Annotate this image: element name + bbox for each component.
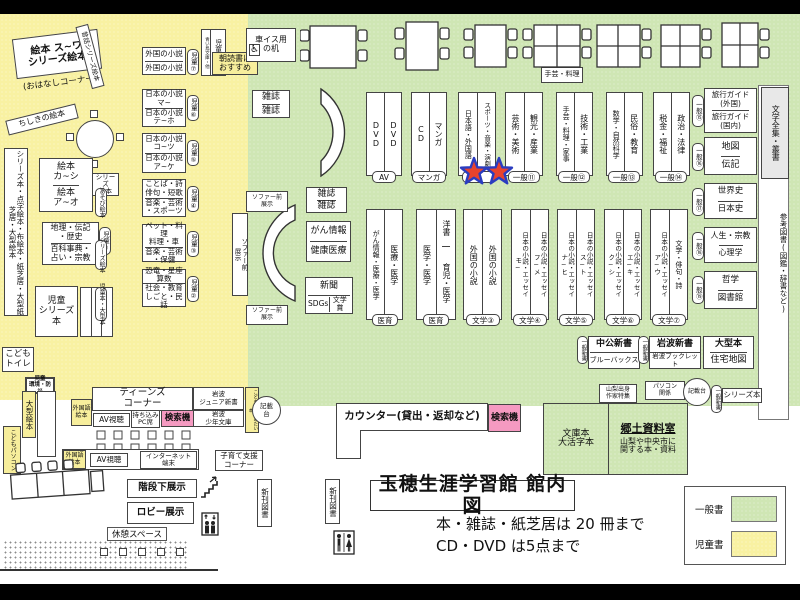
magazine-shelf: 雑誌 雑誌 xyxy=(252,90,290,118)
chair xyxy=(116,133,124,141)
kids-shelf-7: 外国の小説 外国の小説 xyxy=(142,47,186,75)
shelf-label: 人生・宗教 xyxy=(711,228,751,245)
tag-shinsho-2: 一般新書 xyxy=(638,336,649,364)
tag-ippan-14: 一般⑭ xyxy=(655,171,687,183)
shelf-label: 日本の小説・エッセイ エ~キ xyxy=(623,210,642,319)
shelf-label: 雑誌 xyxy=(262,91,280,104)
yamanashi-authors-display: 山梨出身 作家特集 xyxy=(599,384,637,403)
curved-display-shelf xyxy=(313,87,353,178)
shelf-label: 世界史 xyxy=(718,184,744,201)
shelf-travel-guides: 旅行ガイド (外国) 旅行ガイド (国内) xyxy=(704,88,757,133)
computer-books-display: パソコン 関係 xyxy=(645,381,685,400)
new-books-shelf-1: 新刊図書 xyxy=(257,479,272,527)
tag-iiku-1: 医育 xyxy=(372,314,398,326)
kids-shelf-2: 恐竜・星座 算数 社会・教育 しごと・民話 xyxy=(142,269,186,307)
shelf-sublabel: 青い鳥文庫・他 xyxy=(202,30,210,75)
shelf-label: 音楽・芸術 ・保健 xyxy=(145,247,183,265)
shelf-label: がん情報・医療・医学 xyxy=(367,210,384,319)
shelf-label: 岩波新書 xyxy=(657,337,693,352)
literature-prize-label: 文学賞 xyxy=(329,297,351,313)
shelf-label: 恐竜・星座 算数 xyxy=(145,267,183,284)
local-history-title: 郷土資料室 xyxy=(621,423,676,435)
shelf-label: 観光・産業 xyxy=(524,93,543,175)
play-books-tag: あそび絵本 xyxy=(95,188,107,217)
shelf-label: 技術・工業 xyxy=(574,93,592,175)
local-history-room: 文庫本 大活字本 郷土資料室 山梨や中央市に 関する本・資料 xyxy=(543,403,688,475)
loan-rule-2: CD・DVD は5点まで xyxy=(436,535,666,556)
shelf-label: 旅行ガイド (外国) xyxy=(712,89,750,110)
counter: カウンター(貸出・返却など) xyxy=(336,403,488,431)
shelf-label: 日本の小説・エッセイ ク~シ xyxy=(605,210,623,319)
sdgs-label: SDGs xyxy=(308,300,329,308)
shelf-medical-foreign: 医学・医学 洋書 育児・医学 xyxy=(416,209,456,320)
shelf-label: 日本の小説・エッセイ ア~ウ xyxy=(651,210,669,319)
shelf-cd-manga: CD マンガ xyxy=(411,92,447,176)
shelf-jp-novels-5: 日本の小説・エッセイ ナ~ヒ 日本の小説・エッセイ ス~ト xyxy=(557,209,595,320)
shelf-label: 日本の小説 テ~ホ xyxy=(145,108,183,127)
shelf-label: 地理・伝記 ・歴史 xyxy=(51,223,91,243)
shelf-life-psychology: 人生・宗教 心理学 xyxy=(704,227,757,263)
series-picturebook-tag: シリーズ絵本 xyxy=(95,240,107,270)
shelf-label: 日本の小説 ア~ケ xyxy=(145,153,183,173)
shelf-bigbook-map: 大型本 住宅地図 xyxy=(703,336,754,369)
shelf-label: ブルーバックス xyxy=(590,352,639,368)
kids-tables xyxy=(4,456,107,505)
shelf-label: 日本史 xyxy=(718,201,744,219)
tag-shinsho-3: 一般新書 xyxy=(711,385,722,413)
sofa-front-display-top: ソファー前 展示 xyxy=(246,191,288,212)
picture-book-ka-shi-shelf: 絵本 カ~シ 絵本 ア~オ xyxy=(39,158,93,212)
shelf-label: 旅行ガイド (国内) xyxy=(712,110,750,132)
search-terminal-teens: 検索機 xyxy=(161,410,194,427)
shelf-maps-biography: 地図 伝記 xyxy=(704,137,757,175)
shelf-unit xyxy=(37,391,56,457)
shelf-label: 日本の小説・エッセイ モ~ xyxy=(512,210,530,319)
rest-seat xyxy=(176,548,184,556)
shelf-label: 税金・福祉 xyxy=(654,93,671,175)
bottom-letterbox xyxy=(0,584,800,600)
foreign-picturebook-shelf-1: 外国語 絵本 xyxy=(71,399,92,426)
shelf-label: 新聞 xyxy=(320,278,338,295)
under-stairs-display: 階段下展示 xyxy=(127,479,197,498)
shelf-label: 洋書 xyxy=(442,210,450,246)
tag-ippan-15: 一般⑮ xyxy=(692,95,704,127)
shelf-label: 住宅地図 xyxy=(710,352,746,368)
series-braille-bigbook-shelf: シリーズ本・点字絵本・布絵本・紙芝居・大型紙芝居・大型絵本 xyxy=(4,148,28,316)
shelf-label: 数学・自然科学 xyxy=(607,93,624,175)
shelf-foreign-novels: 外国の小説 外国の小説 xyxy=(463,209,502,320)
counter-leg xyxy=(336,430,361,459)
rest-seat xyxy=(138,548,146,556)
shelf-label: 日本の小説 マ~ xyxy=(145,90,183,108)
rest-seat xyxy=(100,548,108,556)
kids-toilet: こども トイレ xyxy=(2,347,34,372)
badge-jido-2: 児童② xyxy=(187,276,199,302)
local-history-desc: 山梨や中央市に 関する本・資料 xyxy=(620,438,676,455)
sofa-front-display-side: ソファー前 展示 xyxy=(232,213,248,296)
shelf-tax-politics: 税金・福祉 政治・法律 xyxy=(653,92,690,176)
literature-collection-shelf: 文学全集・叢書 xyxy=(761,87,789,179)
shelf-label: 中公新書 xyxy=(596,337,632,352)
reference-books-label: 参考図書(図鑑・辞書など) xyxy=(763,213,787,363)
shelf-label: 哲学 xyxy=(722,272,739,290)
shelf-label: 外国の小説 xyxy=(482,210,501,319)
tag-bungaku-6: 文学⑥ xyxy=(606,314,640,326)
rest-seat xyxy=(157,548,165,556)
tag-bungaku-3: 文学③ xyxy=(466,314,500,326)
shelf-label: 育児・医学 xyxy=(442,246,450,319)
legend-general-swatch xyxy=(731,496,777,522)
iwanami-junior-shelf: 岩波 ジュニア新書 xyxy=(193,387,244,410)
legend-general-label: 一般書 xyxy=(695,502,724,516)
kids-shelf-6: 日本の小説 マ~ 日本の小説 テ~ホ xyxy=(142,89,186,127)
search-terminal-counter: 検索機 xyxy=(488,404,521,432)
shelf-label: 日本の小説・エッセイ フ~メ xyxy=(530,210,549,319)
shelf-label: 雑誌 xyxy=(317,200,335,213)
shelf-label: DVD xyxy=(367,93,384,175)
rest-space-label: 休憩スペース xyxy=(107,527,167,541)
shelf-jp-novels-7: 日本の小説・エッセイ ア~ウ 文学・俳句・詩 xyxy=(650,209,688,320)
shelf-label: 日本の小説・エッセイ ス~ト xyxy=(576,210,595,319)
shelf-label: マンガ xyxy=(429,93,447,175)
shelf-label: 音楽・芸術 ・スポーツ xyxy=(145,198,183,217)
shelf-label: 政治・法律 xyxy=(671,93,689,175)
writing-stand-2: 記載台 xyxy=(683,378,711,406)
shelf-label: 絵本 ア~オ xyxy=(53,185,79,212)
rest-seat xyxy=(119,548,127,556)
big-picturebook-shelf: 大型絵本 xyxy=(22,391,36,438)
shelf-label: 雑誌 xyxy=(317,188,335,200)
shelf-label: 民俗・教育 xyxy=(624,93,642,175)
shelf-label: 雑誌 xyxy=(262,104,280,118)
lobby-display: ロビー展示 xyxy=(127,502,194,524)
sofa-crescent xyxy=(245,203,303,303)
childcare-support-corner: 子育て支援 コーナー xyxy=(215,450,263,471)
loan-rule-1: 本・雑誌・紙芝居は 20 冊まで xyxy=(436,513,666,534)
tag-bungaku-5: 文学⑤ xyxy=(559,314,593,326)
tag-ippan-13: 一般⑬ xyxy=(608,171,640,183)
shelf-label: 社会・教育 しごと・民話 xyxy=(143,283,185,309)
shelf-label: 絵本 カ~シ xyxy=(53,159,79,185)
shelf-label: 日本の小説・エッセイ ナ~ヒ xyxy=(558,210,576,319)
kids-shelf-4: ことば・詩 俳句・短歌 音楽・芸術 ・スポーツ xyxy=(142,179,186,217)
tag-av: AV xyxy=(372,171,396,183)
shelf-label: 外国の小説 xyxy=(464,210,482,319)
iwanami-shonen-shelf: 岩波 少年文庫 xyxy=(193,410,244,427)
shelf-label: 日本の小説 コ~ツ xyxy=(145,134,183,153)
shelf-label: 医療・医学 xyxy=(384,210,402,319)
tag-bungaku-7: 文学⑦ xyxy=(652,314,686,326)
kids-shelf-3: ペット・料理 料理・車 音楽・芸術 ・保健 xyxy=(142,224,186,262)
stairs-icon xyxy=(199,476,219,498)
shelf-jp-novels-4: 日本の小説・エッセイ モ~ 日本の小説・エッセイ フ~メ xyxy=(511,209,549,320)
legend: 一般書 児童書 xyxy=(684,486,786,565)
shelf-chuko-bluebacks: 中公新書 ブルーバックス xyxy=(588,336,640,369)
shelf-label: 外国の小説 xyxy=(145,48,183,61)
shelf-label: 岩波ブックレット xyxy=(650,352,700,368)
tag-shinsho-1: 一般新書 xyxy=(577,336,588,364)
wall-line xyxy=(0,569,218,571)
shelf-label: ペット・料理 料理・車 xyxy=(143,222,185,247)
chair xyxy=(90,110,98,118)
teens-corner-header: ティーンズ コーナー xyxy=(92,387,193,411)
tag-ippan-17: 一般⑰ xyxy=(692,188,704,216)
reading-tables xyxy=(300,16,770,78)
tag-ippan-12: 一般⑫ xyxy=(558,171,590,183)
paperback-bigprint-shelf: 文庫本 大活字本 xyxy=(544,404,608,474)
shelf-label: 伝記 xyxy=(721,156,739,175)
newspaper-shelf: 新聞 SDGs 文学賞 xyxy=(305,277,353,314)
legend-children-label: 児童書 xyxy=(695,537,724,551)
legend-children-swatch xyxy=(731,531,777,557)
new-books-shelf-2: 新刊図書 xyxy=(325,479,340,524)
shelf-label: 心理学 xyxy=(719,245,743,263)
top-letterbox xyxy=(0,0,800,14)
children-bigbook-tag: 児童本・大型本 xyxy=(95,287,107,321)
tag-manga: マンガ xyxy=(412,171,446,183)
shelf-label: がん情報 xyxy=(310,222,346,241)
star-markers xyxy=(458,155,516,191)
shelf-craft-tech: 手芸・料理・家事 技術・工業 xyxy=(556,92,593,176)
map-title: 玉穂生涯学習館 館内図 xyxy=(370,480,575,511)
shelf-label: 手芸・料理・家事 xyxy=(557,93,574,175)
shelf-philosophy-library: 哲学 図書館 xyxy=(704,271,757,309)
av-viewing-seat-1: AV視聴 xyxy=(93,413,130,427)
geography-encyclopedia-shelf: 地理・伝記 ・歴史 百科事典・ 占い・宗教 xyxy=(42,222,99,265)
kids-shelf-5: 日本の小説 コ~ツ 日本の小説 ア~ケ xyxy=(142,133,186,173)
shelf-label: 医学・医学 xyxy=(417,210,436,319)
internet-terminal: インターネット 端末 xyxy=(140,451,197,469)
tag-ippan-19: 一般⑲ xyxy=(692,276,704,304)
shelf-label: ことば・詩 俳句・短歌 xyxy=(145,180,183,198)
series-books-shelf: シリーズ本 xyxy=(722,388,762,403)
badge-jido-5: 児童⑤ xyxy=(187,140,199,166)
shelf-label: 文学・俳句・詩 xyxy=(669,210,688,319)
restroom-icon xyxy=(333,530,355,555)
shelf-label: 健康医療 xyxy=(310,241,346,261)
elevator-icon xyxy=(201,512,219,536)
badge-jido-6: 児童⑥ xyxy=(187,95,199,121)
shelf-math-folklore: 数学・自然科学 民俗・教育 xyxy=(606,92,643,176)
shelf-iwanami: 岩波新書 岩波ブックレット xyxy=(649,336,701,369)
library-floor-map: 絵本 ス~ワ シリーズ絵本 (おはなしコーナー) 昔話シリーズ絵本 ちしきの絵本… xyxy=(0,0,800,600)
shelf-jp-novels-6: 日本の小説・エッセイ ク~シ 日本の小説・エッセイ エ~キ xyxy=(604,209,642,320)
writing-stand-1: 記載 台 xyxy=(252,396,281,425)
shelf-cancer-medical: がん情報・医療・医学 医療・医学 xyxy=(366,209,403,320)
shelf-label: 百科事典・ 占い・宗教 xyxy=(51,243,91,264)
badge-jido-3: 児童③ xyxy=(187,231,199,257)
children-series-shelf: 児童 シリーズ本 xyxy=(35,286,78,337)
tag-bungaku-4: 文学④ xyxy=(513,314,547,326)
tag-ippan-18: 一般⑱ xyxy=(692,232,704,260)
byo-pc-seat: 持ち込み PC席 xyxy=(131,410,160,428)
tag-iiku-2: 医育 xyxy=(423,314,449,326)
badge-jido-4: 児童④ xyxy=(187,186,199,212)
tag-ippan-16: 一般⑯ xyxy=(692,143,704,171)
shelf-world-jp-history: 世界史 日本史 xyxy=(704,183,757,219)
chair xyxy=(66,133,74,141)
shelf-label: 大型本 xyxy=(715,337,742,352)
shelf-label: CD xyxy=(412,93,429,175)
sofa-front-display-bottom: ソファー前 展示 xyxy=(246,305,288,325)
wheelchair-icon: ♿ xyxy=(249,44,260,56)
shelf-label: DVD xyxy=(384,93,402,175)
shelf-label: 地図 xyxy=(721,138,739,156)
badge-jido-7: 児童⑦ xyxy=(187,49,199,75)
cancer-info-shelf: がん情報 健康医療 xyxy=(306,221,351,262)
shelf-label: 外国の小説 xyxy=(145,61,183,75)
round-table xyxy=(76,120,114,158)
magazine-shelf-2: 雑誌 雑誌 xyxy=(306,187,347,213)
shelf-label: 図書館 xyxy=(718,290,744,309)
shelf-av-dvd: DVD DVD xyxy=(366,92,402,176)
